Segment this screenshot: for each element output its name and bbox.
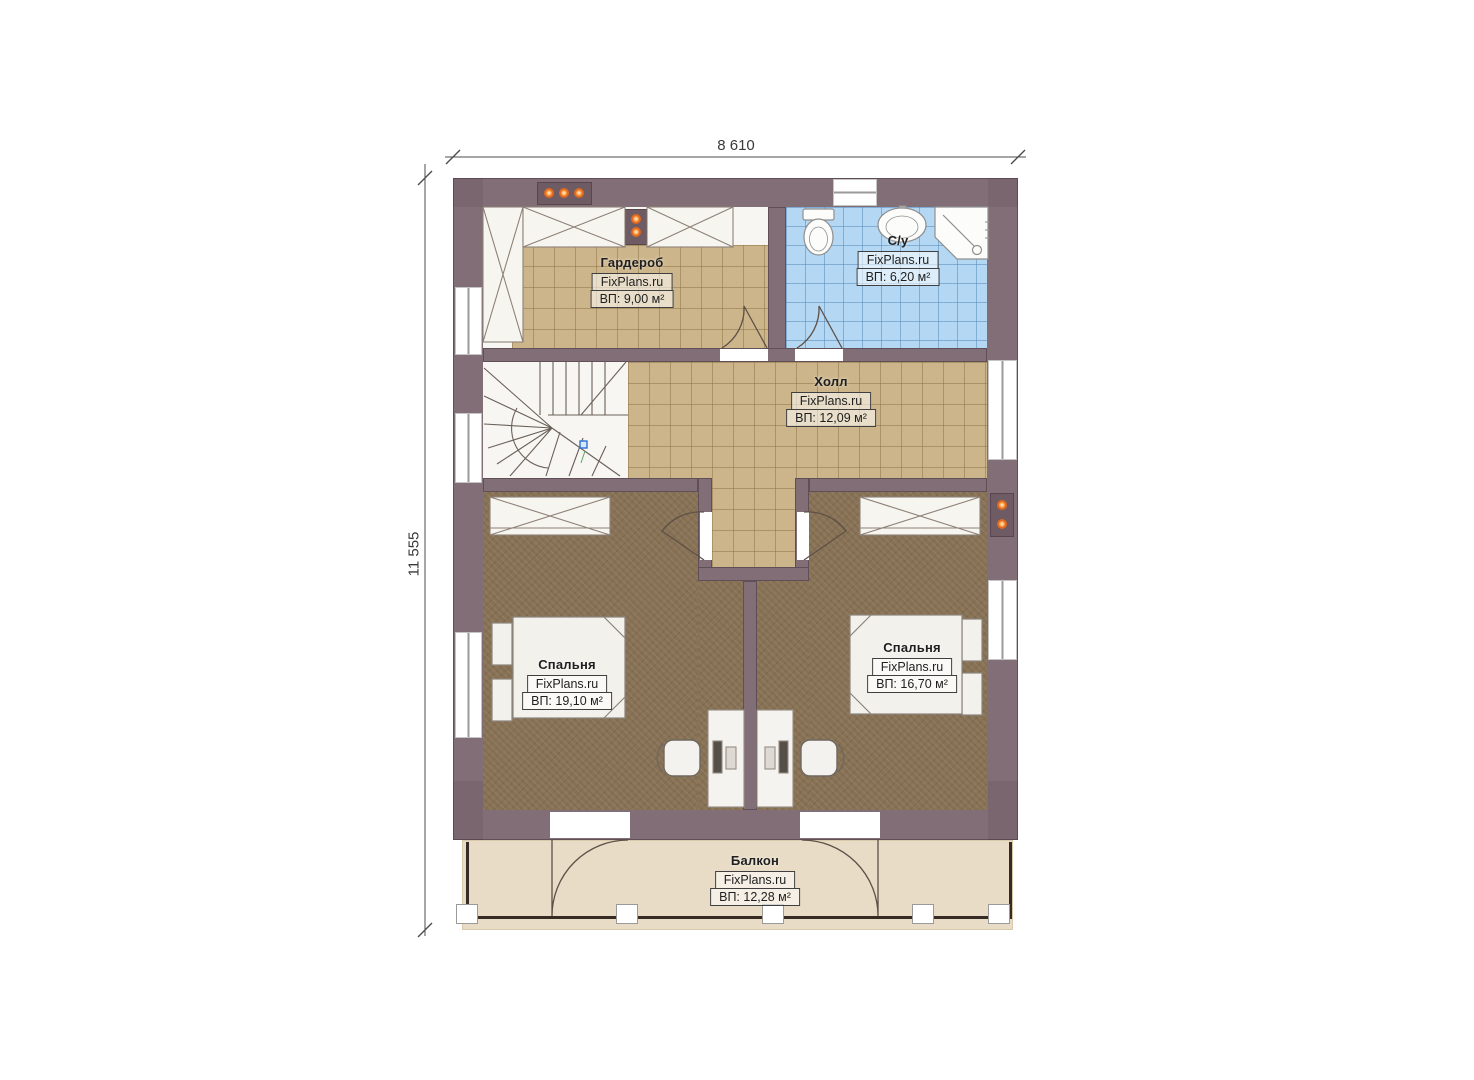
room-name: Спальня (867, 640, 957, 655)
dimension-width-label: 8 610 (717, 137, 755, 154)
door-threshold-wardrobe (720, 349, 768, 361)
railing-post (456, 904, 478, 924)
bedroom-right-floor-ext (757, 581, 809, 810)
area-label: ВП: 16,70 м² (867, 675, 957, 693)
watermark-label: FixPlans.ru (858, 251, 939, 269)
wall-hall-bedroom-right (809, 478, 987, 492)
wall-corner (453, 178, 483, 207)
room-label-bedroom-left: Спальня FixPlans.ru ВП: 19,10 м² (522, 657, 612, 710)
room-label-bathroom: С/у FixPlans.ru ВП: 6,20 м² (857, 233, 940, 286)
bedroom-left-floor (483, 492, 698, 810)
room-label-wardrobe: Гардероб FixPlans.ru ВП: 9,00 м² (591, 255, 674, 308)
wall-light-box (625, 209, 647, 245)
area-label: ВП: 12,09 м² (786, 409, 876, 427)
corridor-end-wall (698, 567, 809, 581)
watermark-label: FixPlans.ru (872, 658, 953, 676)
wall-corner (988, 781, 1018, 840)
railing-post (616, 904, 638, 924)
watermark-label: FixPlans.ru (592, 273, 673, 291)
railing-post (988, 904, 1010, 924)
window-left-bedroom (455, 632, 482, 738)
window-right-bedroom (988, 580, 1017, 660)
railing-post (762, 904, 784, 924)
window-right-hall (988, 360, 1017, 460)
room-label-balcony: Балкон FixPlans.ru ВП: 12,28 м² (710, 853, 800, 906)
bedroom-left-floor-ext (698, 581, 743, 810)
wall-light-box (537, 182, 592, 205)
room-label-hall: Холл FixPlans.ru ВП: 12,09 м² (786, 374, 876, 427)
door-threshold-bedroom-left (700, 512, 712, 560)
room-name: Гардероб (591, 255, 674, 270)
railing-post (912, 904, 934, 924)
door-threshold-balcony-right (800, 812, 880, 838)
wall-between-bedrooms (743, 581, 757, 810)
dimension-height-label: 11 555 (406, 532, 423, 577)
area-label: ВП: 6,20 м² (857, 268, 940, 286)
watermark-label: FixPlans.ru (715, 871, 796, 889)
area-label: ВП: 12,28 м² (710, 888, 800, 906)
door-threshold-bedroom-right (797, 512, 809, 560)
watermark-label: FixPlans.ru (791, 392, 872, 410)
room-label-bedroom-right: Спальня FixPlans.ru ВП: 16,70 м² (867, 640, 957, 693)
window-top-bathroom (833, 179, 877, 206)
room-name: Холл (786, 374, 876, 389)
door-threshold-balcony-left (550, 812, 630, 838)
wall-hall-bedroom-left (483, 478, 698, 492)
wall-light-box (990, 493, 1014, 537)
floor-plan: Гардероб FixPlans.ru ВП: 9,00 м² С/у Fix… (0, 0, 1474, 1080)
room-name: Балкон (710, 853, 800, 868)
window-left-stairs (455, 413, 482, 483)
watermark-label: FixPlans.ru (527, 675, 608, 693)
door-threshold-bathroom (795, 349, 843, 361)
area-label: ВП: 9,00 м² (591, 290, 674, 308)
window-left-wardrobe (455, 287, 482, 355)
area-label: ВП: 19,10 м² (522, 692, 612, 710)
room-name: Спальня (522, 657, 612, 672)
room-name: С/у (857, 233, 940, 248)
wall-wardrobe-bathroom (768, 207, 786, 362)
corridor-floor (712, 362, 795, 567)
wall-corner (453, 781, 483, 840)
wall-corner (988, 178, 1018, 207)
